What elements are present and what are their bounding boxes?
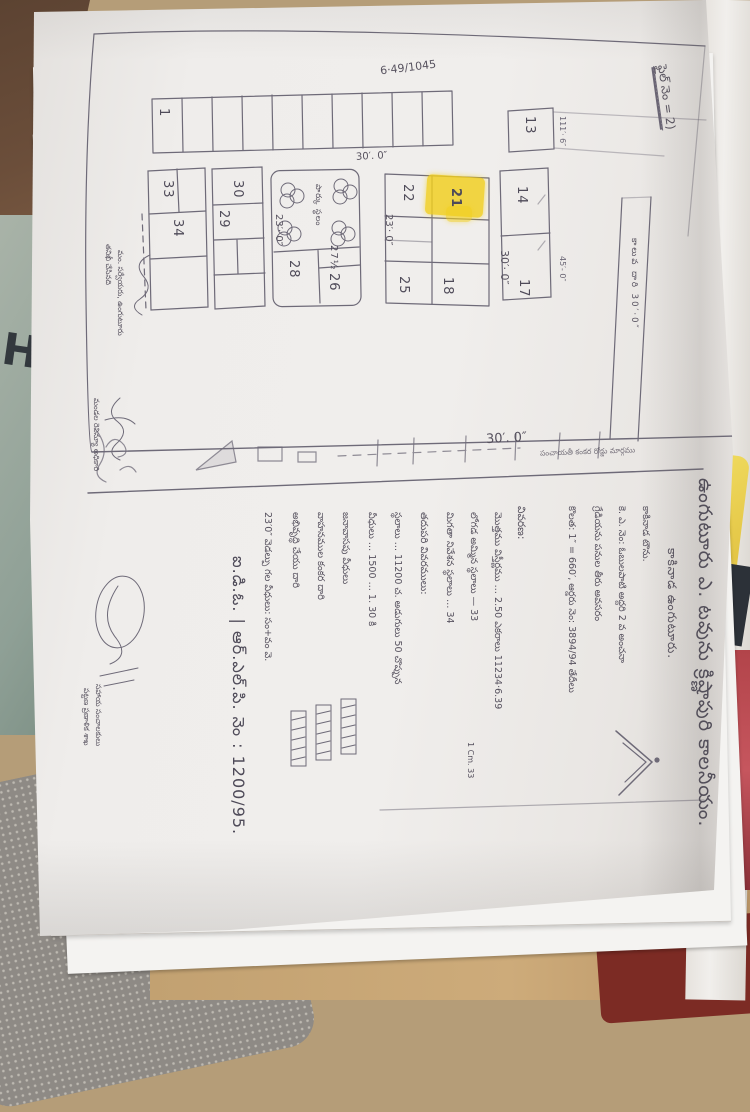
signature-3-stamp xyxy=(91,573,149,686)
plot-label-29: 29 xyxy=(217,210,230,229)
info-line-10: స్థలాలు … 11200 చ. అడుగులు 50 చొప్పున xyxy=(393,512,403,684)
plot-label-25: 25 xyxy=(397,276,410,295)
legend-hatch-2 xyxy=(316,705,331,760)
info-line-12: జనావాసపు వీధులు xyxy=(341,512,351,584)
signature-3-caption-b: పట్టణ ప్రణాళిక శాఖ xyxy=(83,688,91,746)
plot-label-13: 13 xyxy=(523,116,536,135)
plot-label-27: 27½ xyxy=(328,245,338,270)
title-line-1: ఉంగుటూరు ఎ. టవును క్రిష్ణాపురి కాలనీయం. xyxy=(695,478,714,827)
plot-label-34: 34 xyxy=(171,219,184,238)
road-width-label-30-vertical: 30′· 0″ xyxy=(499,250,510,285)
signature-1-flourish xyxy=(134,255,150,315)
highlight-streak xyxy=(446,206,472,222)
layout-id-line: ఐ.డి.ఓ. | ఆర్.ఎల్.పి. నెం : 1200/95. xyxy=(230,556,246,835)
info-line-9: తదుపరి వివరములు: xyxy=(418,512,428,595)
signature-1-caption-b: మం. సర్వేయరు, ఉంగుటూరు xyxy=(117,250,125,336)
info-line-7: లోగడ అమ్మిన స్థలాలు — 33 xyxy=(469,512,479,621)
plot-label-28: 28 xyxy=(287,260,300,279)
road-width-label-23-left: 23′· 0″ xyxy=(273,214,283,245)
plot-label-1: 1 xyxy=(157,108,170,117)
dimension-label-111: 111′· 6″ xyxy=(558,116,566,146)
dimension-label-45: 45′- 0″ xyxy=(558,256,566,282)
info-line-1: కాకినాడ టౌను. xyxy=(641,506,651,562)
north-arrow-icon xyxy=(616,731,659,795)
map-top-plot-strip xyxy=(152,91,453,153)
park-label: పార్కు స్థలం xyxy=(314,184,322,226)
info-line-6: మొత్తము విస్తీర్ణము … 2.50 ఎకరాలు 11234·… xyxy=(493,512,503,709)
plot-label-21: 21 xyxy=(449,188,462,208)
section-underline xyxy=(380,800,704,810)
signature-1-caption-a: తనిఖీ చేసినది xyxy=(105,244,113,285)
info-line-15: 23′0″ వెడల్పు గల వీధులు: సం+వం వె. xyxy=(263,512,273,661)
info-line-11: వీధులు … 1500 … 1. 30 కి xyxy=(367,512,377,626)
signature-3-caption-a: సహాయ సంచాలకులు xyxy=(95,684,103,746)
info-line-14: అభివృద్ధి చేయు దారి xyxy=(291,512,301,588)
legend-hatch-1 xyxy=(341,699,356,754)
plot-label-22: 22 xyxy=(401,184,414,203)
map-cluster-33-34 xyxy=(142,168,208,310)
info-line-8: మిగతా నివేశన స్థలాలు … 34 xyxy=(445,512,455,624)
info-line-13: వాహనముల కంకర దారి xyxy=(316,512,326,600)
road-width-label-30-top: 30′. 0″ xyxy=(356,151,388,163)
scale-note: 1 Cm. 33 xyxy=(466,742,474,778)
plot-label-33: 33 xyxy=(161,180,174,199)
legend-hatch-3 xyxy=(291,711,306,766)
title-line-2: కాకినాడ ఉంగుటూరు. xyxy=(666,548,678,659)
plot-label-26: 26 xyxy=(327,273,340,292)
plot-label-14: 14 xyxy=(515,186,528,205)
info-line-2: కె. ఎ. నెం: ఓబులపాటి అద్దరి 2 వ అంచనా xyxy=(617,506,627,663)
signature-2-caption: మండల రెవిన్యూ అధికారి xyxy=(93,398,101,471)
info-line-4: కొలత: 1″ = 660′, ఆర్డరు నెం: 3894/94 తేద… xyxy=(567,506,577,693)
plot-label-17: 17 xyxy=(517,279,530,298)
plot-label-30: 30 xyxy=(231,180,244,199)
canal-label: కాలువ దారి 30′·0″ xyxy=(630,238,639,330)
document-sheet: 1 13 14 17 18 21 22 25 26 27½ 28 29 30 3… xyxy=(0,0,750,1000)
info-line-5: వివరణ: xyxy=(516,506,527,539)
road-width-label-23-right: 23′· 0″ xyxy=(383,214,393,245)
plot-label-18: 18 xyxy=(441,277,454,296)
road-width-label-30-bottom: 30′. 0″ xyxy=(486,431,528,446)
info-line-3: గ్రేడియను పనుల తీరు అవసరం xyxy=(593,506,603,621)
